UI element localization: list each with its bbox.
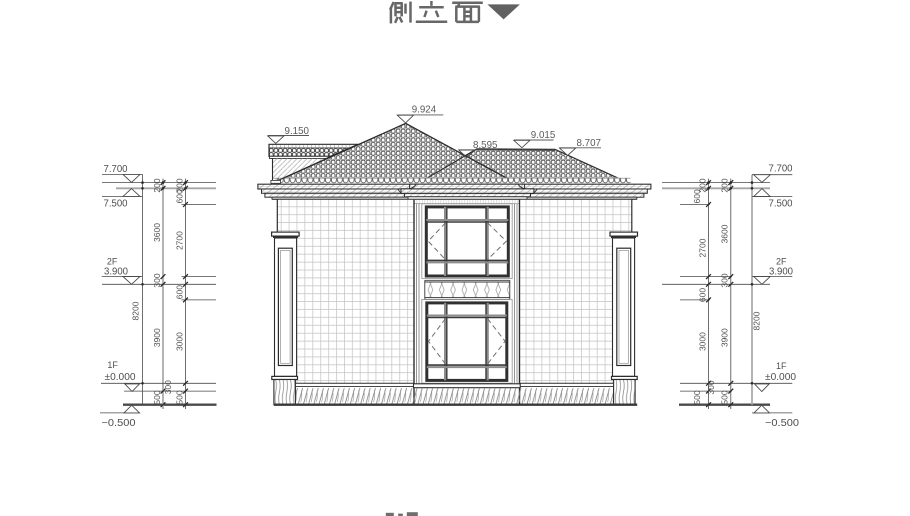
svg-text:600: 600 — [698, 288, 708, 302]
svg-text:9.924: 9.924 — [412, 103, 437, 115]
svg-text:200: 200 — [152, 178, 162, 192]
svg-text:3000: 3000 — [175, 332, 185, 351]
svg-text:3000: 3000 — [698, 332, 708, 351]
svg-text:−0.500: −0.500 — [102, 418, 136, 429]
svg-text:7.500: 7.500 — [104, 198, 128, 209]
svg-text:9.015: 9.015 — [531, 129, 556, 141]
svg-text:1F: 1F — [107, 360, 118, 370]
svg-text:8200: 8200 — [752, 311, 762, 330]
svg-text:600: 600 — [175, 189, 185, 203]
svg-text:2700: 2700 — [698, 238, 708, 257]
svg-text:500: 500 — [720, 390, 730, 404]
svg-text:2F: 2F — [107, 256, 118, 266]
svg-text:7.500: 7.500 — [769, 198, 793, 209]
svg-text:7.700: 7.700 — [104, 164, 128, 175]
svg-text:−0.500: −0.500 — [765, 418, 799, 429]
svg-text:600: 600 — [175, 285, 185, 299]
svg-text:300: 300 — [163, 380, 173, 394]
svg-text:3900: 3900 — [152, 328, 162, 347]
svg-text:500: 500 — [175, 390, 185, 404]
svg-text:3600: 3600 — [720, 224, 730, 243]
svg-text:3.900: 3.900 — [104, 267, 128, 278]
svg-text:7.700: 7.700 — [769, 164, 793, 175]
svg-text:8200: 8200 — [131, 301, 141, 320]
svg-text:600: 600 — [692, 189, 702, 203]
svg-text:300: 300 — [706, 380, 716, 394]
svg-text:200: 200 — [720, 178, 730, 192]
svg-text:2F: 2F — [776, 256, 787, 266]
svg-text:1F: 1F — [776, 361, 787, 371]
svg-text:3.900: 3.900 — [769, 267, 793, 278]
svg-text:3600: 3600 — [152, 223, 162, 242]
svg-text:±0.000: ±0.000 — [105, 372, 136, 383]
svg-text:500: 500 — [692, 390, 702, 404]
svg-text:500: 500 — [152, 390, 162, 404]
svg-text:±0.000: ±0.000 — [765, 372, 796, 383]
svg-text:3900: 3900 — [720, 328, 730, 347]
svg-text:300: 300 — [720, 273, 730, 287]
svg-text:2700: 2700 — [175, 231, 185, 250]
svg-text:8.707: 8.707 — [577, 137, 602, 149]
svg-text:300: 300 — [152, 273, 162, 287]
